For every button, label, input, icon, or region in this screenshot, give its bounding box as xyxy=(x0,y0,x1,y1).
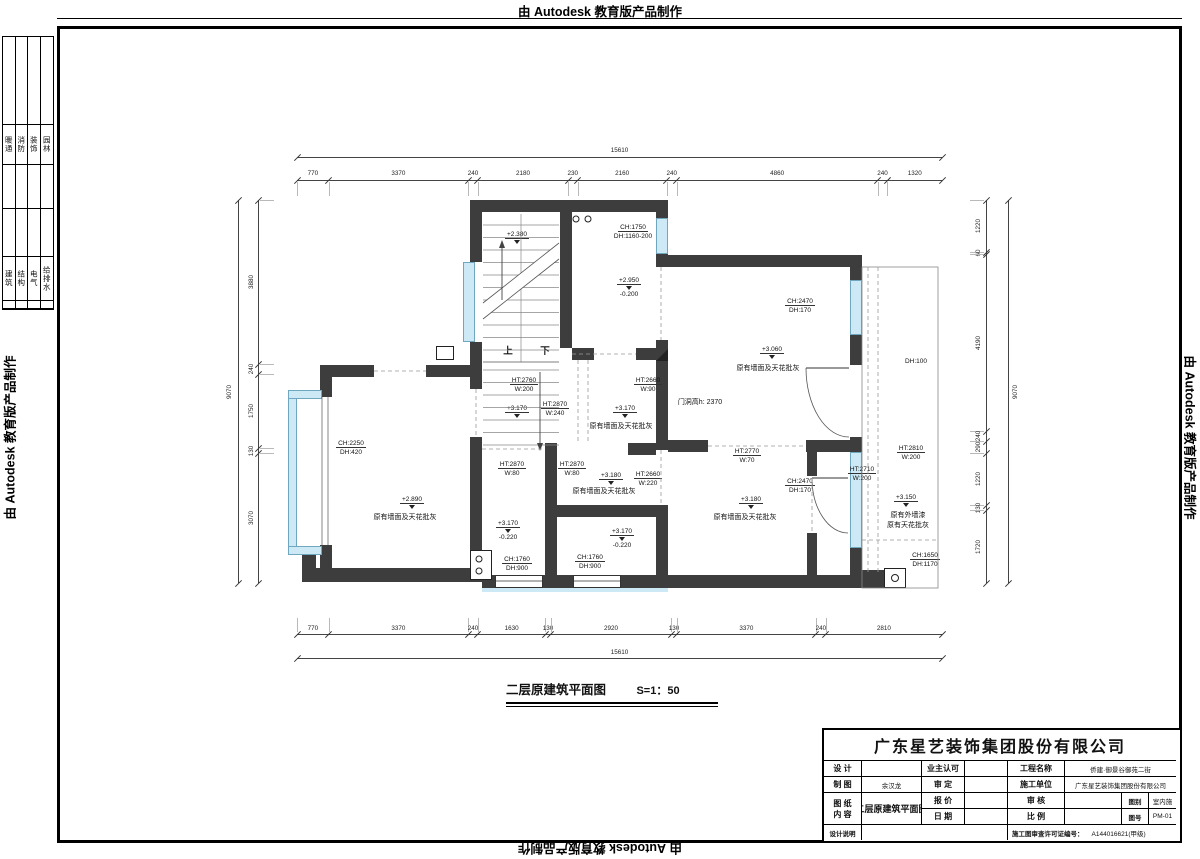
plan-annotation: DH:100 xyxy=(868,358,964,366)
dimension-value: 240 xyxy=(652,170,692,177)
permit-row: 施工图审查许可证编号： A144016621(甲级) xyxy=(1008,825,1176,840)
wall xyxy=(628,443,656,455)
plan-annotation: CH:1750 xyxy=(585,224,681,232)
dimension-value: 3070 xyxy=(248,498,256,538)
plan-annotation: CH:2250 xyxy=(303,440,399,448)
plan-annotation: CH:2470 xyxy=(752,298,848,306)
wall xyxy=(656,255,862,267)
balcony-edge xyxy=(482,588,668,592)
dimension-value: 4860 xyxy=(757,170,797,177)
dimension-value: 240 xyxy=(801,625,841,632)
extension-line xyxy=(329,618,330,632)
plan-annotation: W:90 xyxy=(600,386,696,394)
wall xyxy=(858,570,884,588)
dimension-line xyxy=(986,200,987,583)
plan-annotation: 原有墙面及天花批灰 xyxy=(720,365,816,373)
value-approve xyxy=(965,777,1008,793)
wall xyxy=(850,335,862,365)
plan-annotation: HT:2660 xyxy=(600,377,696,385)
plan-annotation: +3.170 xyxy=(574,528,670,541)
extension-line xyxy=(329,182,330,196)
dimension-line xyxy=(297,634,942,635)
dimension-line xyxy=(297,157,942,158)
label-notes: 设计说明 xyxy=(824,825,862,840)
extension-line xyxy=(677,618,678,632)
plan-annotation: +2.890 xyxy=(364,496,460,509)
extension-line xyxy=(878,182,879,196)
plan-annotation: 原有墙面及天花批灰 xyxy=(556,488,652,496)
value-sheet-content: 二层原建筑平面图 xyxy=(862,793,922,825)
value-category: 室内施 xyxy=(1149,793,1176,809)
extension-line xyxy=(887,182,888,196)
plan-annotation: +3.170 xyxy=(469,405,565,418)
extension-line xyxy=(677,182,678,196)
plan-annotation: W:200 xyxy=(814,475,910,483)
plan-annotation: W:200 xyxy=(476,386,572,394)
plan-annotation: 原有墙面及天花批灰 xyxy=(573,423,669,431)
plan-annotation: +3.060 xyxy=(724,346,820,359)
label-draft: 制 图 xyxy=(824,777,862,793)
dimension-line xyxy=(1008,200,1009,583)
extension-line xyxy=(826,618,827,632)
dimension-value: 9070 xyxy=(226,372,234,412)
window xyxy=(288,390,322,399)
title-underline xyxy=(506,702,718,704)
extension-line xyxy=(970,510,984,511)
value-drafter: 余汉龙 xyxy=(862,777,922,793)
extension-line xyxy=(578,182,579,196)
label-project-name: 工程名称 xyxy=(1008,761,1065,777)
dimension-value: 2180 xyxy=(503,170,543,177)
dimension-value: 240 xyxy=(248,349,256,389)
plan-annotation: DH:170 xyxy=(752,487,848,495)
plan-annotation: W:70 xyxy=(699,457,795,465)
dimension-value: 1750 xyxy=(248,391,256,431)
dimension-line xyxy=(238,200,239,583)
extension-line xyxy=(970,200,984,201)
plan-annotation: W:200 xyxy=(863,454,959,462)
wall xyxy=(806,440,862,452)
plan-annotation: 原有天花批灰 xyxy=(860,522,956,530)
plan-title-text: 二层原建筑平面图 xyxy=(506,679,606,698)
dimension-value: 2810 xyxy=(864,625,904,632)
value-quote xyxy=(965,793,1008,809)
wall xyxy=(470,200,668,212)
plan-annotation: DH:1160-200 xyxy=(585,233,681,241)
extension-line xyxy=(970,453,984,454)
value-permit: A144016621(甲级) xyxy=(1092,828,1146,838)
plan-annotation: +3.170 xyxy=(460,520,556,533)
extension-line xyxy=(970,254,984,255)
label-number: 图号 xyxy=(1122,809,1149,825)
extension-line xyxy=(260,200,274,201)
window xyxy=(573,575,621,588)
value-design xyxy=(862,761,922,777)
plan-annotation: -0.200 xyxy=(581,291,677,299)
title-block: 广东星艺装饰集团股份有限公司 设 计 业主认可 工程名称 侨建·御景谷御苑二街 … xyxy=(822,728,1182,843)
window xyxy=(850,280,862,335)
plan-annotation: 原有墙面及天花批灰 xyxy=(357,514,453,522)
dimension-value: 130 xyxy=(528,625,568,632)
label-quote: 报 价 xyxy=(922,793,965,809)
plan-annotation: +3.180 xyxy=(703,496,799,509)
dimension-value: 2920 xyxy=(591,625,631,632)
dimension-value: 1720 xyxy=(975,527,983,567)
plan-annotation: DH:900 xyxy=(542,563,638,571)
label-permit: 施工图审查许可证编号： xyxy=(1012,828,1084,838)
value-scale xyxy=(1065,809,1122,825)
wall xyxy=(850,255,862,280)
dimension-value: 130 xyxy=(248,431,256,471)
label-scale: 比 例 xyxy=(1008,809,1065,825)
plan-annotation: -0.220 xyxy=(574,542,670,550)
dimension-value: 4190 xyxy=(975,323,983,363)
dimension-value: 130 xyxy=(975,488,983,528)
value-owner-approval xyxy=(965,761,1008,777)
label-sheet-content: 图 纸内 容 xyxy=(824,793,862,825)
window xyxy=(288,390,297,555)
plan-scale: S=1：50 xyxy=(636,682,679,698)
value-builder: 广东星艺装饰集团股份有限公司 xyxy=(1065,777,1176,793)
extension-line xyxy=(667,182,668,196)
fixture xyxy=(884,568,906,588)
company-name: 广东星艺装饰集团股份有限公司 xyxy=(824,730,1176,761)
dimension-line xyxy=(297,180,942,181)
plan-annotation: +3.150 xyxy=(858,494,954,507)
extension-line xyxy=(468,182,469,196)
wall xyxy=(656,340,668,450)
window xyxy=(495,575,543,588)
dimension-value: 15610 xyxy=(600,649,640,656)
dimension-value: 1630 xyxy=(492,625,532,632)
plan-annotation: +2.380 xyxy=(469,231,565,244)
value-project-name: 侨建·御景谷御苑二街 xyxy=(1065,761,1176,777)
plan-annotation: 原有外墙漆 xyxy=(860,512,956,520)
extension-line xyxy=(478,618,479,632)
dimension-value: 770 xyxy=(293,625,333,632)
extension-line xyxy=(260,374,274,375)
dimension-value: 15610 xyxy=(600,147,640,154)
wall xyxy=(302,568,482,582)
dimension-value: 240 xyxy=(453,170,493,177)
fixture xyxy=(436,346,454,360)
plan-annotation: DH:170 xyxy=(752,307,848,315)
plan-annotation: 原有墙面及天花批灰 xyxy=(697,514,793,522)
plan-annotation: HT:2770 xyxy=(699,448,795,456)
extension-line xyxy=(260,448,274,449)
dimension-value: 1320 xyxy=(895,170,935,177)
dimension-value: 3880 xyxy=(248,262,256,302)
plan-annotation: DH:1170 xyxy=(877,561,973,569)
value-number: PM-01 xyxy=(1149,809,1176,825)
notes-empty xyxy=(862,825,1008,840)
label-approve: 审 定 xyxy=(922,777,965,793)
drawing-sheet: 由 Autodesk 教育版产品制作 由 Autodesk 教育版产品制作 由 … xyxy=(0,0,1200,859)
dimension-value: 2160 xyxy=(602,170,642,177)
plan-annotation: HT:2660 xyxy=(600,471,696,479)
plan-annotation: 门洞高h: 2370 xyxy=(652,399,748,407)
plan-annotation: HT:2760 xyxy=(476,377,572,385)
plan-annotation: CH:1650 xyxy=(877,552,973,560)
plan-annotation: DH:420 xyxy=(303,449,399,457)
plan-title: 二层原建筑平面图 S=1：50 xyxy=(506,679,718,707)
extension-line xyxy=(260,453,274,454)
plan-annotation: 下 xyxy=(497,346,593,357)
dimension-value: 3370 xyxy=(378,170,418,177)
extension-line xyxy=(260,364,274,365)
extension-line xyxy=(551,618,552,632)
plan-annotation: CH:1760 xyxy=(542,554,638,562)
plan-annotation: W:220 xyxy=(600,480,696,488)
label-check: 审 核 xyxy=(1008,793,1065,809)
extension-line xyxy=(297,182,298,196)
extension-line xyxy=(478,182,479,196)
dimension-value: 230 xyxy=(553,170,593,177)
wall xyxy=(807,533,817,575)
wall xyxy=(320,365,374,377)
label-category: 图别 xyxy=(1122,793,1149,809)
dimension-value: 60 xyxy=(975,233,983,273)
label-builder: 施工单位 xyxy=(1008,777,1065,793)
title-underline2 xyxy=(506,706,718,707)
dimension-value: 240 xyxy=(453,625,493,632)
plan-annotation: HT:2810 xyxy=(863,445,959,453)
dimension-line xyxy=(297,658,942,659)
dimension-value: 130 xyxy=(654,625,694,632)
label-design: 设 计 xyxy=(824,761,862,777)
dimension-value: 3370 xyxy=(726,625,766,632)
plan-annotation: HT:2870 xyxy=(524,461,620,469)
window xyxy=(463,262,475,342)
dimension-value: 3370 xyxy=(378,625,418,632)
wall xyxy=(668,575,862,588)
label-owner-approval: 业主认可 xyxy=(922,761,965,777)
dimension-value: 9070 xyxy=(1012,372,1020,412)
dimension-line xyxy=(258,200,259,583)
window xyxy=(288,546,322,555)
plan-annotation: -0.220 xyxy=(460,534,556,542)
wall xyxy=(557,505,656,517)
value-check xyxy=(1065,793,1122,809)
extension-line xyxy=(568,182,569,196)
label-date: 日 期 xyxy=(922,809,965,825)
value-date xyxy=(965,809,1008,825)
plan-annotation: HT:2710 xyxy=(814,466,910,474)
plan-annotation: +2.950 xyxy=(581,277,677,290)
dimension-value: 770 xyxy=(293,170,333,177)
